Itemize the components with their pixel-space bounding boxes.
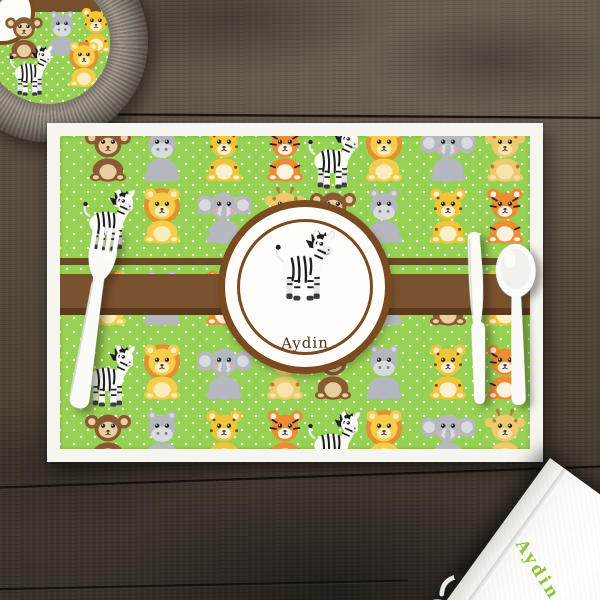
cheetah-pattern-animal: [197, 136, 251, 186]
giraffe-pattern-animal: [478, 408, 530, 449]
zebra-pattern-animal: [8, 44, 54, 101]
monogram-medallion: Aydin: [218, 200, 392, 374]
pattern-row: [60, 408, 530, 449]
lion-pattern-animal: [357, 408, 411, 449]
tiger-pattern-animal: [258, 408, 312, 449]
lion-pattern-animal: [357, 136, 411, 186]
placemat-pattern: Aydin: [60, 136, 530, 449]
personalized-name: Aydin: [225, 333, 385, 354]
hippo-pattern-animal: [357, 342, 411, 404]
lion-pattern-animal: [135, 342, 189, 404]
zebra-pattern-animal: [306, 410, 362, 449]
hippo-pattern-animal: [135, 136, 189, 186]
lion-pattern-animal: [62, 40, 106, 91]
pattern-row: [60, 136, 530, 186]
medallion-white-circle: Aydin: [225, 207, 385, 367]
zebra-illustration: [273, 229, 337, 306]
hippo-pattern-animal: [135, 408, 189, 449]
spoon: [493, 242, 541, 414]
lion-pattern-animal: [135, 186, 189, 248]
monkey-pattern-animal: [81, 136, 135, 186]
wood-plank-seam: [0, 580, 408, 592]
napkin-personalized-name: Aydin: [511, 536, 564, 600]
tiger-pattern-animal: [258, 136, 312, 186]
wood-plank-seam: [118, 113, 600, 119]
elephant-pattern-animal: [421, 136, 475, 186]
giraffe-pattern-animal: [478, 136, 530, 186]
cheetah-pattern-animal: [197, 408, 251, 449]
wood-plank-seam: [0, 465, 600, 490]
paper-plate-printed-pattern: [0, 0, 110, 104]
elephant-pattern-animal: [421, 408, 475, 449]
knife: [460, 229, 491, 414]
product-photo-scene: Aydin Aydin: [0, 0, 600, 600]
